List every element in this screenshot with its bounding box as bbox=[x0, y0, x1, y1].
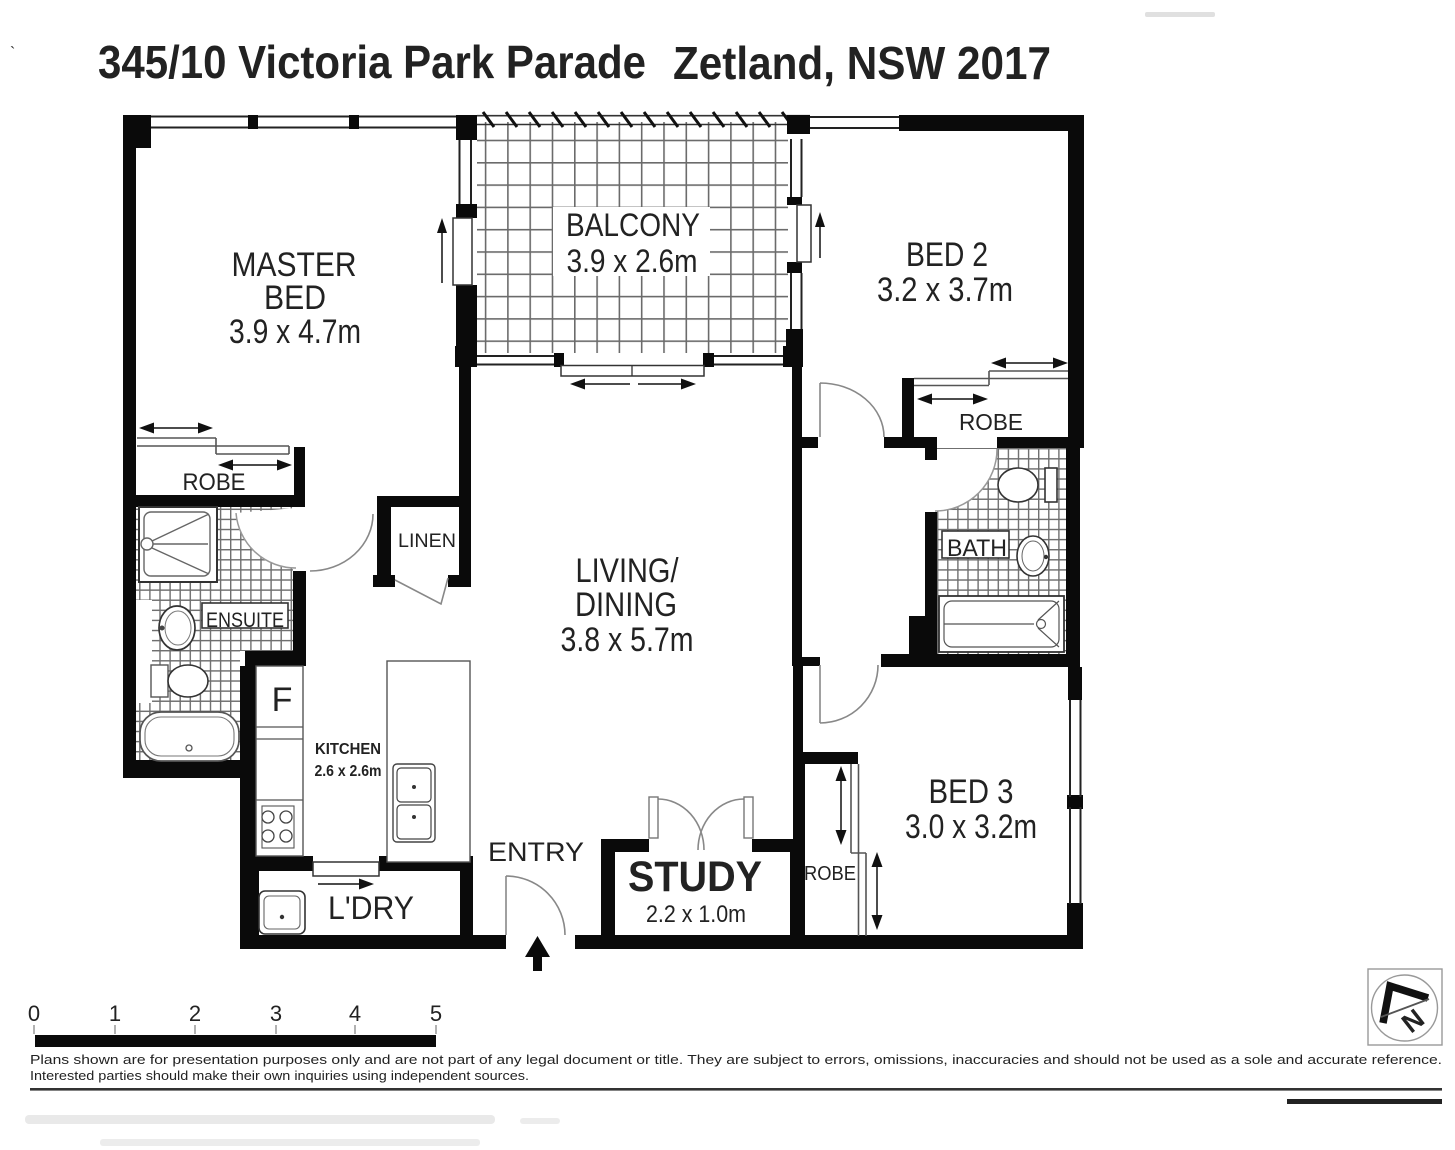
svg-text:LIVING/: LIVING/ bbox=[576, 552, 679, 590]
svg-text:2.6 x 2.6m: 2.6 x 2.6m bbox=[315, 763, 382, 780]
svg-text:BED 3: BED 3 bbox=[929, 773, 1014, 811]
svg-text:3.8 x 5.7m: 3.8 x 5.7m bbox=[561, 621, 694, 659]
svg-text:KITCHEN: KITCHEN bbox=[315, 741, 381, 758]
svg-text:ENTRY: ENTRY bbox=[488, 837, 584, 867]
svg-text:3.0 x 3.2m: 3.0 x 3.2m bbox=[905, 808, 1037, 846]
svg-text:2: 2 bbox=[189, 1001, 201, 1026]
svg-text:0: 0 bbox=[28, 1001, 40, 1026]
svg-text:BED 2: BED 2 bbox=[906, 236, 988, 274]
svg-text:LINEN: LINEN bbox=[398, 531, 456, 552]
svg-text:1: 1 bbox=[109, 1001, 121, 1026]
svg-text:BALCONY: BALCONY bbox=[566, 207, 700, 243]
svg-text:ROBE: ROBE bbox=[183, 469, 246, 496]
svg-text:L'DRY: L'DRY bbox=[328, 890, 414, 926]
svg-text:BED: BED bbox=[264, 279, 326, 317]
svg-text:BATH: BATH bbox=[947, 535, 1007, 562]
svg-text:3: 3 bbox=[270, 1001, 282, 1026]
svg-text:4: 4 bbox=[349, 1001, 361, 1026]
svg-text:Zetland, NSW 2017: Zetland, NSW 2017 bbox=[673, 37, 1051, 89]
svg-text:DINING: DINING bbox=[575, 586, 677, 624]
svg-text:`: ` bbox=[10, 45, 15, 62]
svg-text:2.2 x 1.0m: 2.2 x 1.0m bbox=[646, 901, 746, 928]
svg-text:ROBE: ROBE bbox=[959, 409, 1023, 435]
svg-text:3.9 x 2.6m: 3.9 x 2.6m bbox=[567, 243, 698, 279]
svg-text:3.9 x 4.7m: 3.9 x 4.7m bbox=[229, 313, 361, 351]
svg-text:STUDY: STUDY bbox=[628, 853, 762, 901]
svg-text:F: F bbox=[272, 681, 293, 719]
svg-text:3.2 x 3.7m: 3.2 x 3.7m bbox=[877, 271, 1013, 309]
svg-text:Interested parties should make: Interested parties should make their own… bbox=[30, 1068, 529, 1083]
svg-text:5: 5 bbox=[430, 1001, 442, 1026]
svg-text:345/10 Victoria Park Parade: 345/10 Victoria Park Parade bbox=[98, 36, 646, 88]
svg-text:Plans shown are for presentati: Plans shown are for presentation purpose… bbox=[30, 1052, 1442, 1067]
svg-text:ENSUITE: ENSUITE bbox=[206, 609, 284, 632]
svg-text:ROBE: ROBE bbox=[804, 863, 856, 885]
